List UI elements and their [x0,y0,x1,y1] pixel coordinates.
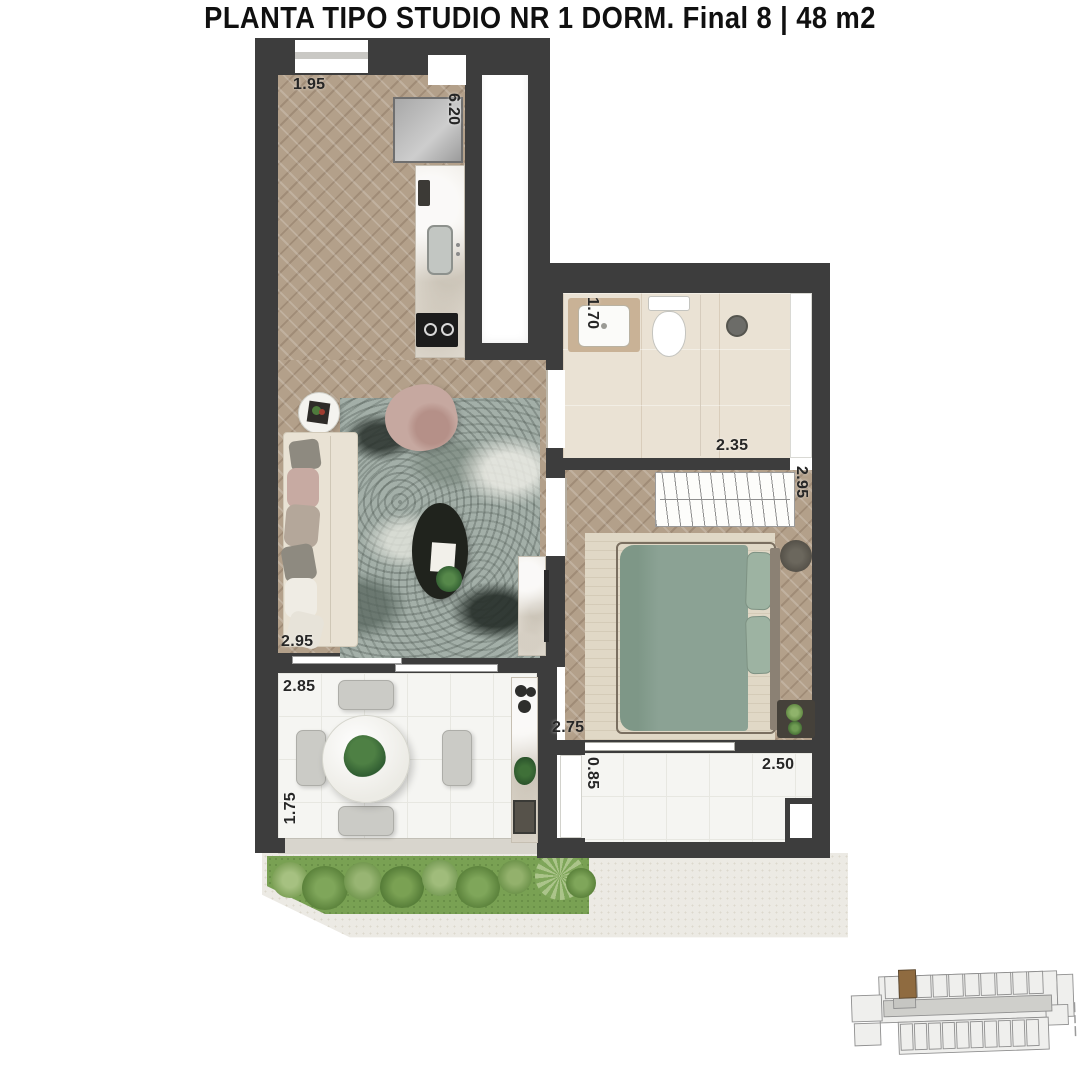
wall [465,63,482,360]
kitchen-sink [427,225,453,275]
terrace-niche [790,804,812,838]
wall [255,38,278,853]
wardrobe-rail [660,499,790,500]
tv-console [518,556,546,656]
dim-closet-length: 2.95 [792,466,810,498]
dim-entry-width: 1.95 [293,76,325,94]
sink-drain-dot [601,323,607,329]
faucet-dot [456,243,460,247]
bed-pillow [745,616,773,675]
shrub-plant [498,860,532,894]
terrace-railing [278,838,537,854]
shrub-plant [380,866,424,908]
shower-drain [726,315,748,337]
shrub-plant [302,866,348,910]
faucet-dot [456,252,460,256]
floor-plan-page: 1.95 6.20 1.70 2.35 2.95 2.95 2.85 1.75 … [0,0,1080,1080]
cooktop-burner [424,323,437,336]
cooktop-burner [441,323,454,336]
wall [546,293,563,370]
sofa-pillow [288,438,322,472]
wall [546,470,565,478]
side-table-plant-leaf [319,409,325,415]
dining-chair [442,730,472,786]
shrub-plant [566,868,596,898]
dining-chair [338,680,394,710]
bedroom-terrace-door [560,755,582,838]
wall [546,458,790,470]
bedroom-window [575,742,735,751]
tv-screen [544,570,549,642]
dim-living-width: 2.95 [281,633,313,651]
dim-bedroom-terrace-width: 2.50 [762,756,794,774]
sofa-pillow [287,468,319,508]
dining-chair [338,806,394,836]
plan-caption: PLANTA TIPO STUDIO NR 1 DORM. Final 8 | … [65,0,1015,36]
bathroom-door [546,370,565,448]
sofa-seat-line [330,436,331,643]
street-label-marks [1074,1002,1077,1036]
entry-threshold [295,52,368,59]
wall [557,842,830,858]
shrub-plant [344,862,382,900]
wall [528,263,830,293]
service-shaft [480,63,528,343]
coffee-machine [418,180,430,206]
grill-burner [526,687,536,697]
wall [537,667,557,858]
terrace-sliding-door [395,664,498,672]
shower-divider [700,295,701,456]
dim-bedroom-terrace-depth: 0.85 [583,757,601,789]
bed-pillow [745,552,773,611]
wall [255,838,285,853]
mat-plant [786,704,803,721]
bedside-table [780,540,812,572]
grill-burner [518,700,531,713]
coffee-table-plant [436,566,462,592]
wall-niche [428,55,466,85]
dim-bedroom-width: 2.75 [552,719,584,737]
dim-kitchen-run: 6.20 [444,93,462,125]
shrub-plant [456,866,500,908]
shrub-plant [422,860,458,896]
dim-terrace-depth: 1.75 [282,792,300,824]
dim-terrace-width: 2.85 [283,678,315,696]
unit-location-keyplan [850,948,1080,1080]
toilet-tank [648,296,690,311]
sofa-pillow [283,504,321,549]
dim-bathroom-width: 1.70 [583,297,601,329]
wall [557,740,585,755]
toilet-bowl [652,311,686,357]
mat-plant [788,721,802,735]
wall [812,263,830,470]
bed-duvet [620,545,748,731]
bathroom-window [790,293,812,458]
dim-bathroom-length: 2.35 [716,437,748,455]
bedroom-door [546,478,567,556]
wall [465,343,550,360]
counter-sink-box [513,800,536,834]
keyplan-highlighted-unit [898,970,916,999]
